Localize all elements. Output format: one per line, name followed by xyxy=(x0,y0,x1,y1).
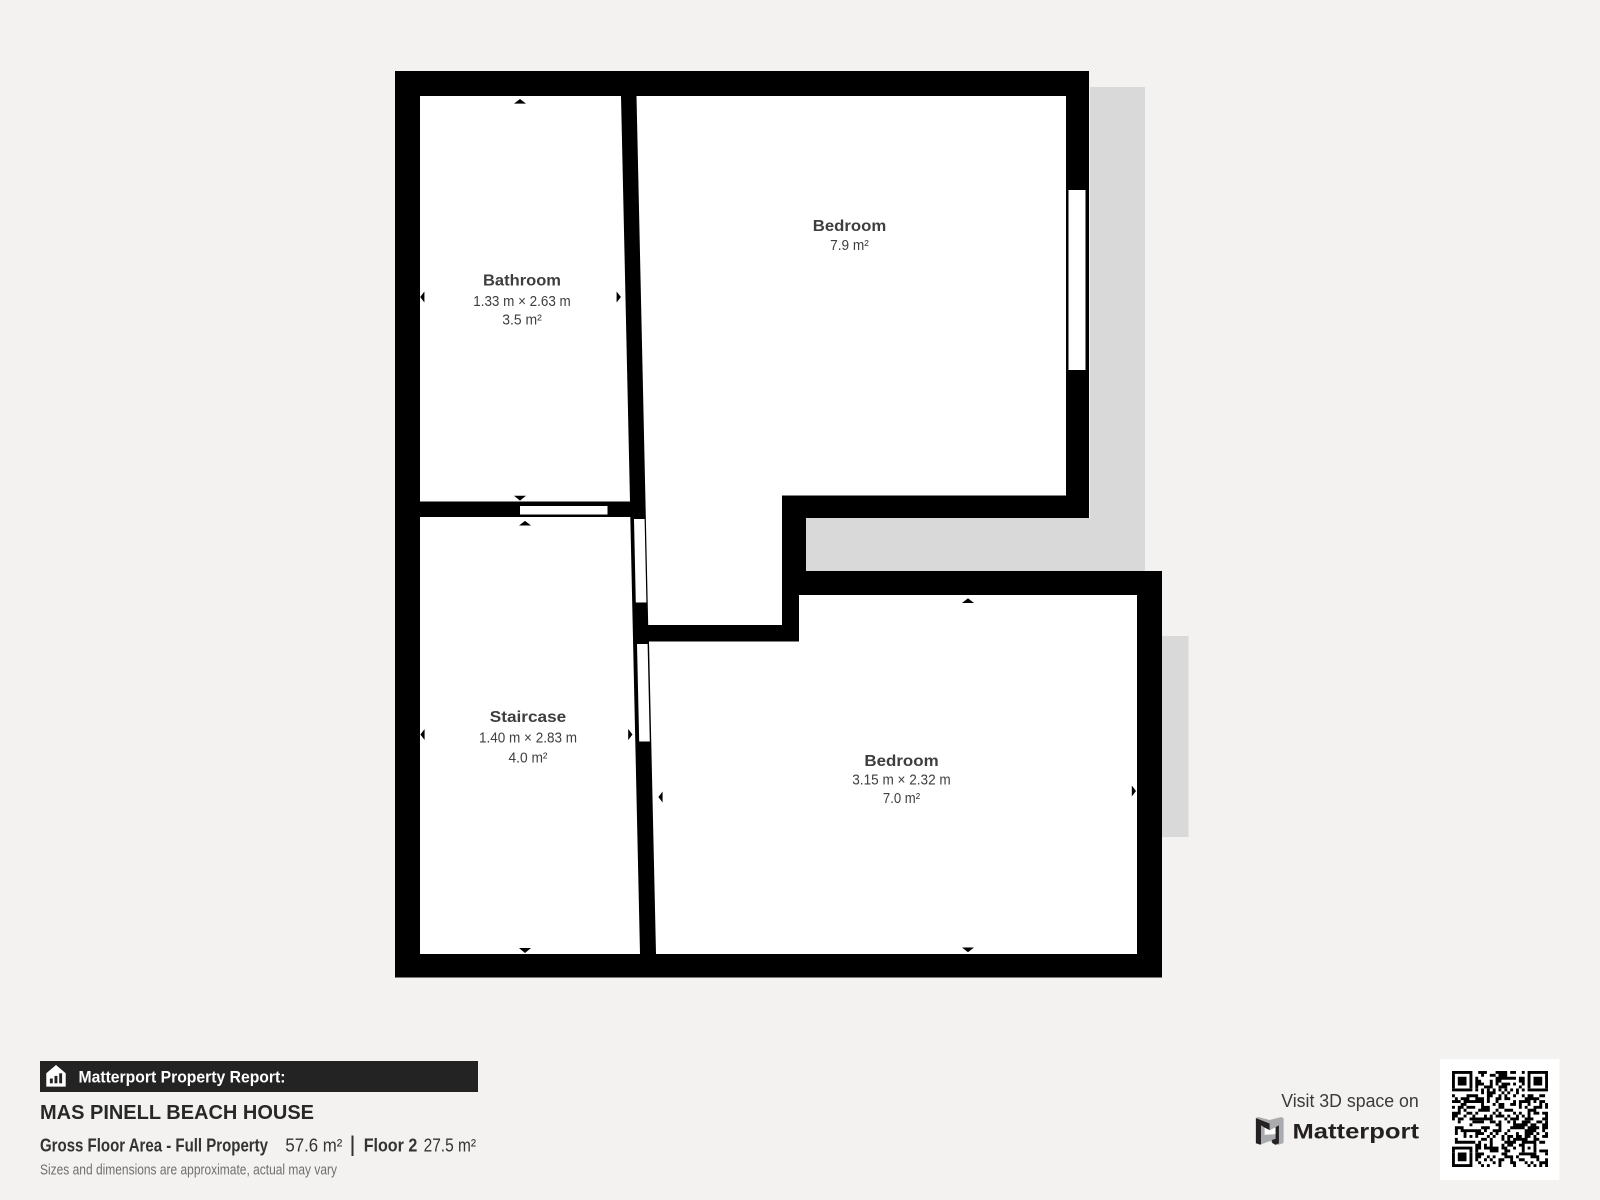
svg-text:57.6 m²: 57.6 m² xyxy=(285,1136,342,1156)
svg-text:Sizes and dimensions are appro: Sizes and dimensions are approximate, ac… xyxy=(40,1163,338,1179)
svg-text:7.0 m²: 7.0 m² xyxy=(883,791,920,807)
svg-text:Visit 3D space on: Visit 3D space on xyxy=(1281,1090,1419,1111)
svg-text:Matterport: Matterport xyxy=(1293,1119,1420,1143)
svg-text:3.5 m²: 3.5 m² xyxy=(502,313,542,329)
svg-text:Bedroom: Bedroom xyxy=(813,218,887,235)
svg-text:Gross Floor Area - Full Proper: Gross Floor Area - Full Property xyxy=(40,1136,268,1156)
svg-text:Staircase: Staircase xyxy=(490,709,567,726)
svg-text:4.0 m²: 4.0 m² xyxy=(509,751,548,767)
svg-text:Floor 2: Floor 2 xyxy=(364,1136,418,1156)
svg-text:7.9 m²: 7.9 m² xyxy=(830,238,869,254)
svg-text:Bathroom: Bathroom xyxy=(483,273,561,290)
svg-text:Matterport Property Report:: Matterport Property Report: xyxy=(79,1067,286,1086)
svg-text:1.40 m × 2.83 m: 1.40 m × 2.83 m xyxy=(479,730,577,746)
svg-text:1.33 m × 2.63 m: 1.33 m × 2.63 m xyxy=(473,294,571,310)
svg-text:Bedroom: Bedroom xyxy=(864,753,938,770)
svg-text:3.15 m × 2.32 m: 3.15 m × 2.32 m xyxy=(852,773,951,789)
svg-text:27.5 m²: 27.5 m² xyxy=(424,1136,476,1156)
svg-text:MAS PINELL BEACH HOUSE: MAS PINELL BEACH HOUSE xyxy=(40,1102,314,1124)
